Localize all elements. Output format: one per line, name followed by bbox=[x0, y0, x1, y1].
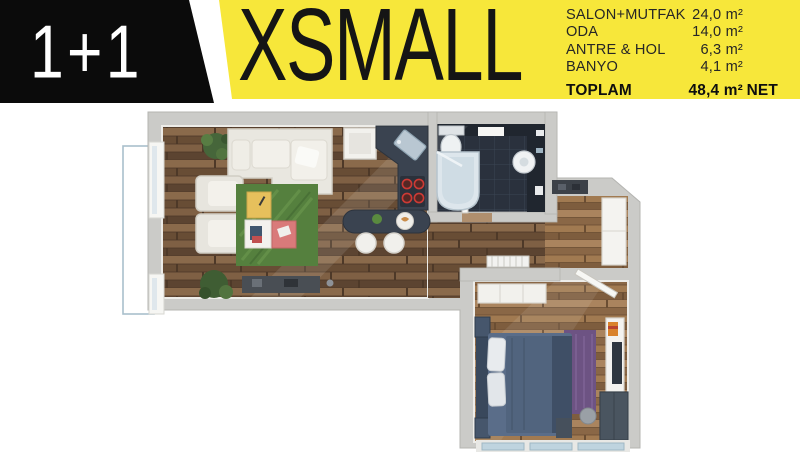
bedroom-windows bbox=[476, 440, 630, 452]
bed-bench bbox=[556, 418, 572, 438]
header-banner: XSMALL SALON+MUTFAK 24,0 m² ODA 14,0 m² … bbox=[0, 0, 800, 106]
desk-tv bbox=[606, 318, 624, 392]
room-area: 4,1 m² bbox=[689, 59, 743, 76]
unit-type-box: 1+1 bbox=[0, 0, 216, 103]
towel-shelf bbox=[478, 127, 504, 136]
total-label: TOPLAM bbox=[566, 82, 689, 99]
plan-name: XSMALL bbox=[238, 0, 522, 96]
total-net: NET bbox=[743, 82, 778, 99]
room-area: 24,0 m² bbox=[689, 7, 743, 24]
radiator bbox=[487, 256, 529, 267]
entrance-mat bbox=[552, 180, 588, 194]
room-label: BANYO bbox=[566, 59, 689, 76]
media-bench bbox=[242, 276, 334, 293]
pouf bbox=[580, 408, 596, 424]
bedroom-wardrobe-top bbox=[478, 284, 546, 303]
unit-type: 1+1 bbox=[30, 8, 143, 96]
room-label: ODA bbox=[566, 24, 689, 41]
room-label: ANTRE & HOL bbox=[566, 42, 689, 59]
fridge bbox=[344, 128, 376, 159]
room-label: SALON+MUTFAK bbox=[566, 7, 689, 24]
total-area: 48,4 m² bbox=[689, 82, 743, 99]
room-area: 14,0 m² bbox=[689, 24, 743, 41]
armchairs bbox=[196, 176, 243, 253]
hall-cabinet bbox=[602, 198, 626, 265]
room-area: 6,3 m² bbox=[689, 42, 743, 59]
cooktop bbox=[400, 176, 425, 207]
bathtub bbox=[437, 152, 479, 210]
room-area-table: SALON+MUTFAK 24,0 m² ODA 14,0 m² ANTRE &… bbox=[566, 7, 778, 99]
bedroom-wardrobe bbox=[600, 392, 628, 440]
kitchen-island bbox=[343, 210, 430, 233]
